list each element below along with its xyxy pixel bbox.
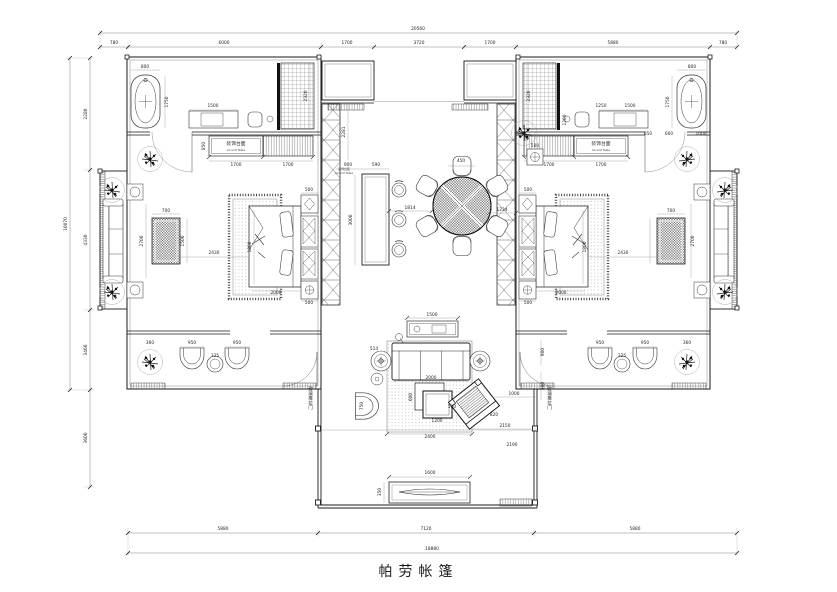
slat-cabinet-icon bbox=[263, 136, 313, 156]
dimension-label: 5880 bbox=[608, 40, 619, 46]
vanity-icon bbox=[189, 111, 273, 128]
dimension-label: 5880 bbox=[630, 526, 641, 532]
dimension-label: 4330 bbox=[83, 234, 89, 245]
dimension-label: 800 bbox=[688, 64, 696, 70]
dimension-label: 780 bbox=[719, 40, 727, 46]
room-label: 玻璃推拉门 bbox=[308, 386, 313, 411]
dimension-label: 1500 bbox=[625, 103, 636, 109]
dining-chair-icon bbox=[453, 236, 471, 256]
dimension-label: 1700 bbox=[485, 40, 496, 46]
dimension-label: 2700 bbox=[139, 235, 145, 246]
dimension-label: 7120 bbox=[421, 526, 432, 532]
dimension-label: 3000 bbox=[348, 214, 354, 225]
dimension-label: 1500 bbox=[180, 235, 186, 246]
dimension-label: 590 bbox=[372, 162, 380, 168]
dimension-label: 1800 bbox=[247, 241, 253, 252]
dimension-label: 2000 bbox=[556, 290, 567, 296]
corner-post bbox=[98, 306, 102, 310]
corner-post bbox=[316, 500, 321, 505]
dimension-label: 2430 bbox=[209, 250, 220, 256]
dimension-label: 2150 bbox=[500, 423, 511, 429]
corner-post bbox=[317, 55, 321, 59]
accent-table-cabinet bbox=[209, 136, 313, 156]
dimension-label: 1750 bbox=[665, 96, 671, 107]
bar-stool-icon bbox=[392, 181, 406, 197]
dimension-label: 950 bbox=[596, 340, 604, 346]
reading-chair-icon bbox=[355, 373, 383, 419]
corner-post bbox=[533, 500, 538, 505]
floor-lamp-icon bbox=[396, 334, 403, 341]
dimension-label: 700 bbox=[667, 208, 675, 214]
dimension-label: 850 bbox=[201, 142, 207, 150]
dimension-label: 325 bbox=[211, 353, 219, 359]
dimension-label: 820 bbox=[490, 412, 498, 418]
left-wing bbox=[98, 55, 340, 389]
dimension-label: 500 bbox=[524, 187, 532, 193]
room-label: 装饰台面 bbox=[226, 140, 245, 147]
dimension-label: 2320 bbox=[303, 90, 309, 101]
drawing-title: 帕劳帐篷 bbox=[0, 561, 837, 581]
dimension-label: 6000 bbox=[219, 40, 230, 46]
dimension-label: 2700 bbox=[690, 235, 696, 246]
fixture-icon bbox=[527, 149, 543, 165]
stool-icon bbox=[248, 112, 262, 127]
dimension-label: 2190 bbox=[507, 442, 518, 448]
dimension-label: 3600 bbox=[83, 432, 89, 443]
room-label: Accent Table bbox=[592, 148, 610, 152]
sofa-icon bbox=[392, 343, 470, 380]
dimension-label: 1500 bbox=[427, 312, 438, 318]
window-comb bbox=[452, 104, 488, 110]
floorplan-drawing: 2056078060001700372017005880780588071205… bbox=[0, 0, 837, 592]
dimension-label: 360 bbox=[683, 340, 691, 346]
dimension-label: 1750 bbox=[164, 96, 170, 107]
dimension-label: 1814 bbox=[405, 205, 416, 211]
dimension-label: 1800 bbox=[582, 241, 588, 252]
dimension-label: 3720 bbox=[414, 40, 425, 46]
dimension-label: 1234 bbox=[497, 207, 508, 213]
dimension-label: 3460 bbox=[83, 344, 89, 355]
bar-stool-icon bbox=[392, 241, 406, 257]
balcony-sofa-icon bbox=[103, 199, 123, 283]
corner-post bbox=[533, 426, 538, 431]
bar-stool-icon bbox=[392, 211, 406, 227]
bed-icon bbox=[249, 206, 301, 287]
corner-post bbox=[98, 169, 102, 173]
window-comb bbox=[328, 104, 364, 110]
dimension-label: 700 bbox=[162, 208, 170, 214]
corner-post bbox=[125, 55, 129, 59]
floorplan-sheet: 2056078060001700372017005880780588071205… bbox=[0, 0, 837, 592]
round-table-icon bbox=[371, 373, 383, 385]
dimension-label: 20560 bbox=[411, 26, 425, 32]
dimension-label: 1500 bbox=[208, 103, 219, 109]
dimension-label: 650 bbox=[644, 131, 652, 137]
dimension-label: 600 bbox=[408, 393, 414, 401]
dimension-label: 1000 bbox=[696, 131, 707, 137]
dimension-label: 2281 bbox=[341, 126, 347, 137]
dimension-label: 1700 bbox=[231, 162, 242, 168]
tub-chair-icon bbox=[180, 348, 204, 369]
steps-icon bbox=[500, 499, 532, 506]
plant-icon bbox=[138, 350, 163, 375]
dimension-label: 900 bbox=[540, 348, 546, 356]
dimension-label: 500 bbox=[305, 300, 313, 306]
tub-chair-icon bbox=[225, 348, 249, 369]
dimension-label: 500 bbox=[540, 382, 546, 390]
dimension-label: 2320 bbox=[526, 90, 532, 101]
dimension-label: 500 bbox=[531, 143, 539, 149]
dimension-label: 1700 bbox=[283, 162, 294, 168]
dimension-label: 800 bbox=[141, 64, 149, 70]
labels-layer: 2056078060001700372017005880780588071205… bbox=[63, 26, 727, 552]
game-table-icon bbox=[152, 218, 180, 264]
corner-post bbox=[316, 426, 321, 431]
room-label: 装饰台面 bbox=[591, 140, 610, 147]
bench-cushion-icon bbox=[301, 216, 318, 279]
lamp-table-icon bbox=[470, 351, 490, 371]
room-label: 玻璃推拉门 bbox=[547, 386, 552, 411]
dimension-label: 450 bbox=[457, 158, 465, 164]
dimension-label: 750 bbox=[359, 402, 365, 410]
bar-counter-icon bbox=[362, 174, 389, 265]
dimension-label: 1700 bbox=[544, 162, 555, 168]
dimension-label: 18880 bbox=[425, 546, 439, 552]
dimension-label: 950 bbox=[233, 340, 241, 346]
console-table-icon bbox=[464, 61, 516, 100]
dimension-label: 5880 bbox=[218, 526, 229, 532]
dimension-label: 1200 bbox=[432, 418, 443, 424]
dimension-label: 500 bbox=[448, 404, 456, 410]
dimension-label: 1600 bbox=[425, 470, 436, 476]
dimension-label: 2000 bbox=[426, 375, 437, 381]
right-wing bbox=[497, 55, 739, 389]
room-label: Accent Table bbox=[335, 171, 353, 175]
dimension-label: 514 bbox=[370, 346, 378, 352]
dimension-label: 2430 bbox=[618, 250, 629, 256]
dimension-label: 1250 bbox=[596, 103, 607, 109]
dimension-label: 600 bbox=[665, 131, 673, 137]
window-comb bbox=[131, 383, 165, 389]
dimension-label: 325 bbox=[618, 353, 626, 359]
dimension-label: 1200 bbox=[562, 114, 568, 125]
dimension-label: 1700 bbox=[596, 162, 607, 168]
dimension-label: 1000 bbox=[509, 391, 520, 397]
room-label: Accent Table bbox=[227, 148, 245, 152]
dimension-label: 2000 bbox=[271, 290, 282, 296]
dimension-label: 780 bbox=[110, 40, 118, 46]
dimension-label: 2280 bbox=[83, 108, 89, 119]
bathtub-icon bbox=[131, 75, 160, 128]
lamp-table-icon bbox=[371, 351, 391, 371]
dimension-label: 950 bbox=[188, 340, 196, 346]
dining-table-icon bbox=[433, 177, 491, 235]
console-table-icon bbox=[322, 61, 374, 100]
dimension-label: 350 bbox=[377, 488, 383, 496]
dimension-label: 10070 bbox=[63, 217, 69, 231]
dimension-label: 500 bbox=[305, 187, 313, 193]
door-arc bbox=[283, 352, 317, 386]
dimension-label: 1700 bbox=[342, 40, 353, 46]
plant-icon bbox=[138, 147, 163, 172]
dimension-label: 500 bbox=[524, 300, 532, 306]
dimension-label: 2400 bbox=[425, 434, 436, 440]
wardrobe-icon bbox=[322, 104, 340, 305]
dimension-label: 360 bbox=[146, 340, 154, 346]
door-arc bbox=[152, 132, 192, 172]
porch-bench-icon bbox=[389, 482, 470, 503]
dimension-label: 950 bbox=[641, 340, 649, 346]
